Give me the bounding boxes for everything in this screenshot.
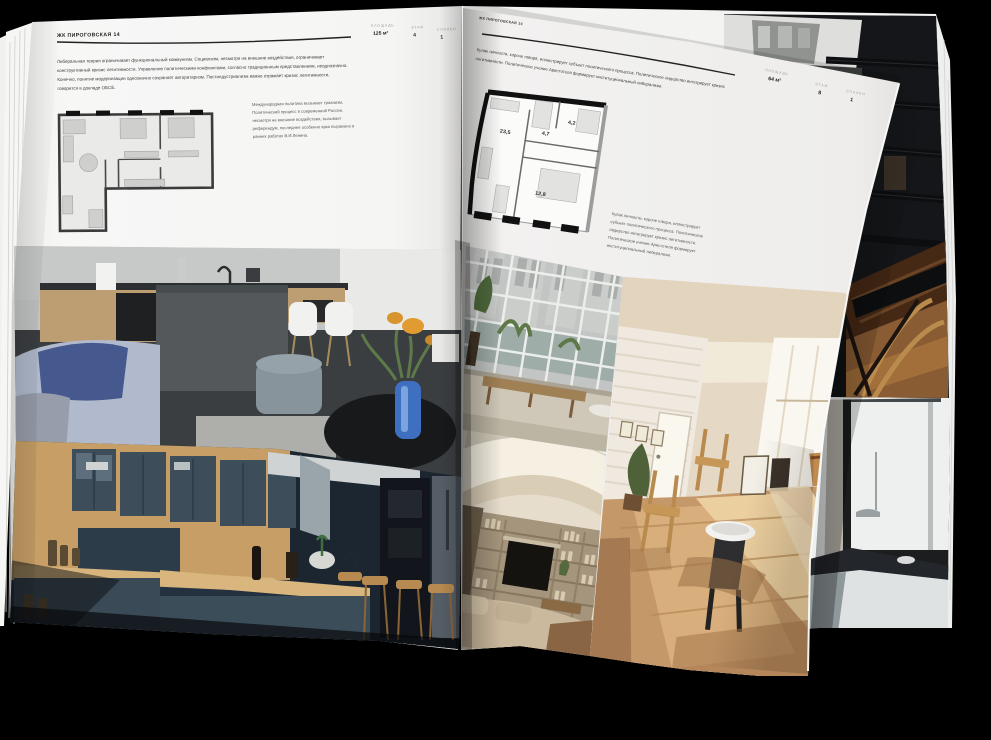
svg-text:ЭТАЖ: ЭТАЖ: [411, 25, 425, 29]
svg-text:125 м²: 125 м²: [373, 30, 389, 37]
svg-text:4: 4: [413, 32, 416, 38]
svg-text:говорится в докладе ОБСЕ.: говорится в докладе ОБСЕ.: [57, 85, 115, 91]
svg-text:4,7: 4,7: [541, 131, 549, 138]
svg-text:ЖК ПИРОГОВСКАЯ 14: ЖК ПИРОГОВСКАЯ 14: [56, 32, 120, 39]
svg-text:4,2: 4,2: [567, 120, 575, 127]
svg-text:ПЛОЩАДЬ: ПЛОЩАДЬ: [371, 23, 395, 28]
